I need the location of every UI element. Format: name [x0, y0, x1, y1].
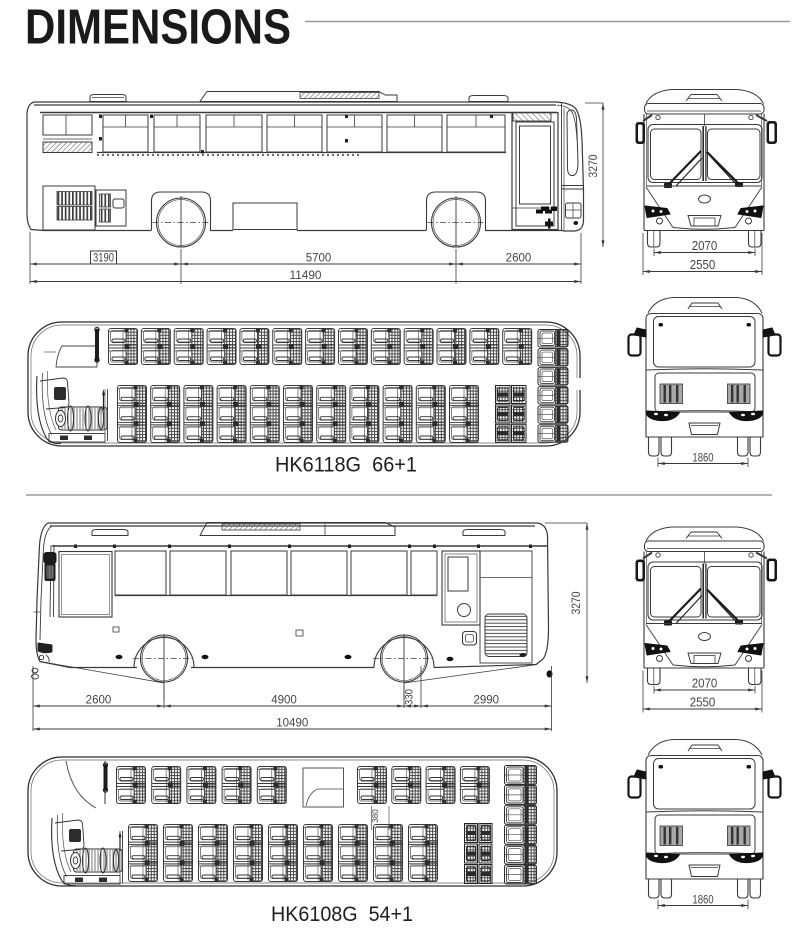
- svg-text:4900: 4900: [271, 695, 297, 707]
- svg-text:3270: 3270: [586, 154, 600, 177]
- svg-text:1860: 1860: [692, 893, 713, 907]
- svg-text:DIMENSIONS: DIMENSIONS: [25, 1, 291, 55]
- svg-text:3190: 3190: [93, 253, 114, 265]
- svg-text:3270: 3270: [569, 591, 583, 614]
- svg-text:2070: 2070: [692, 676, 718, 691]
- svg-text:5700: 5700: [306, 253, 332, 265]
- svg-text:2600: 2600: [86, 695, 112, 707]
- svg-text:2990: 2990: [473, 695, 499, 707]
- svg-text:330: 330: [404, 689, 416, 705]
- svg-text:2070: 2070: [692, 238, 718, 253]
- svg-text:2600: 2600: [506, 253, 532, 265]
- svg-text:10490: 10490: [276, 718, 308, 730]
- svg-text:1860: 1860: [692, 451, 713, 465]
- svg-text:HK6118G 66+1: HK6118G 66+1: [275, 453, 417, 477]
- svg-text:11490: 11490: [290, 270, 322, 282]
- svg-text:2550: 2550: [690, 695, 716, 710]
- svg-text:HK6108G 54+1: HK6108G 54+1: [271, 902, 413, 926]
- svg-text:380: 380: [371, 809, 380, 823]
- svg-text:2550: 2550: [690, 257, 716, 272]
